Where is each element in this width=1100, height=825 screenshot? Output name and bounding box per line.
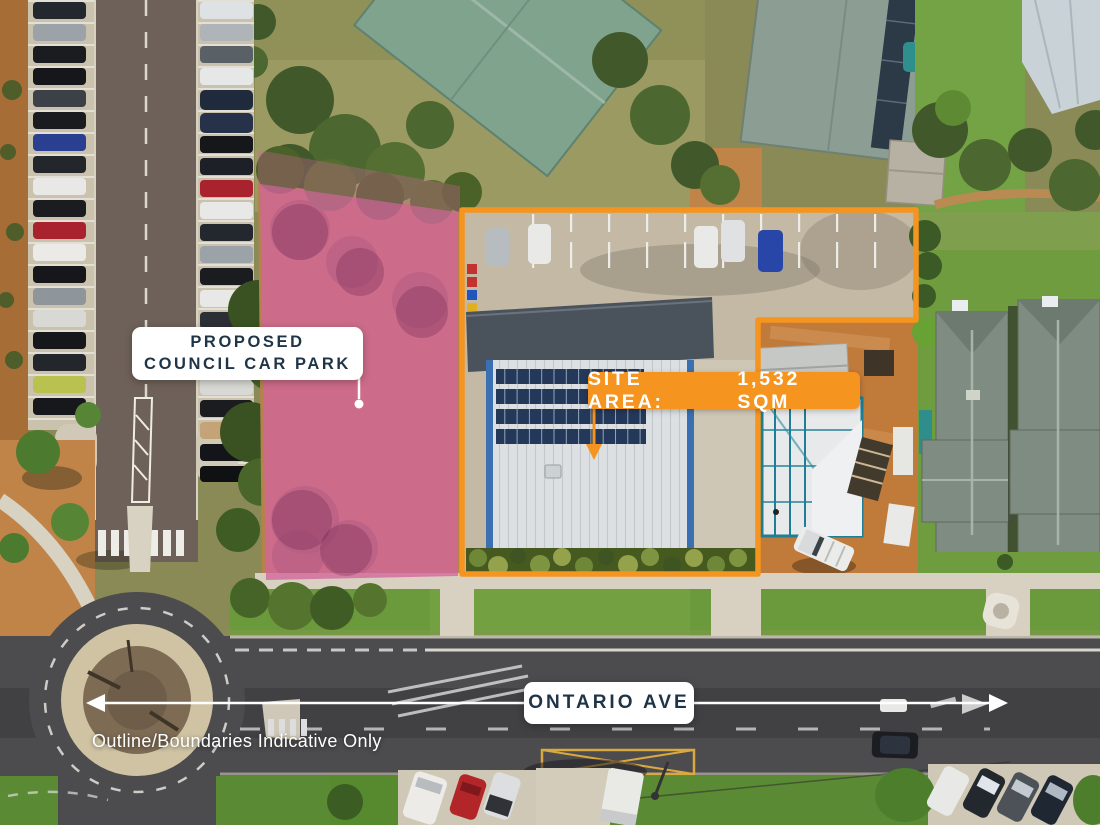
- proposed-car-park-line2: COUNCIL CAR PARK: [144, 354, 351, 376]
- site-area-label: SITE AREA: 1,532 SQM: [588, 372, 860, 409]
- site-area-caption: SITE AREA:: [588, 368, 724, 414]
- house-roof-1: [922, 300, 1012, 554]
- left-street: [0, 0, 298, 640]
- construction-zone: [758, 318, 918, 580]
- proposed-car-park-label: PROPOSED COUNCIL CAR PARK: [132, 327, 363, 380]
- proposed-car-park-line1: PROPOSED: [190, 332, 304, 354]
- steel-frame-building: [762, 398, 862, 536]
- car-park-leader-dot: [355, 400, 364, 409]
- grey-roof-house: [741, 0, 939, 163]
- right-houses: [909, 212, 1100, 580]
- aerial-site-photo: PROPOSED COUNCIL CAR PARK SITE AREA: 1,5…: [0, 0, 1100, 825]
- house-roof-2: [1010, 296, 1100, 562]
- street-name-text: ONTARIO AVE: [528, 692, 689, 714]
- street-name-label: ONTARIO AVE: [524, 682, 694, 724]
- roundabout: [29, 592, 245, 808]
- light-grey-roof-house: [1022, 0, 1100, 114]
- site-area-value: 1,532 SQM: [737, 368, 860, 414]
- disclaimer-text: Outline/Boundaries Indicative Only: [92, 731, 382, 752]
